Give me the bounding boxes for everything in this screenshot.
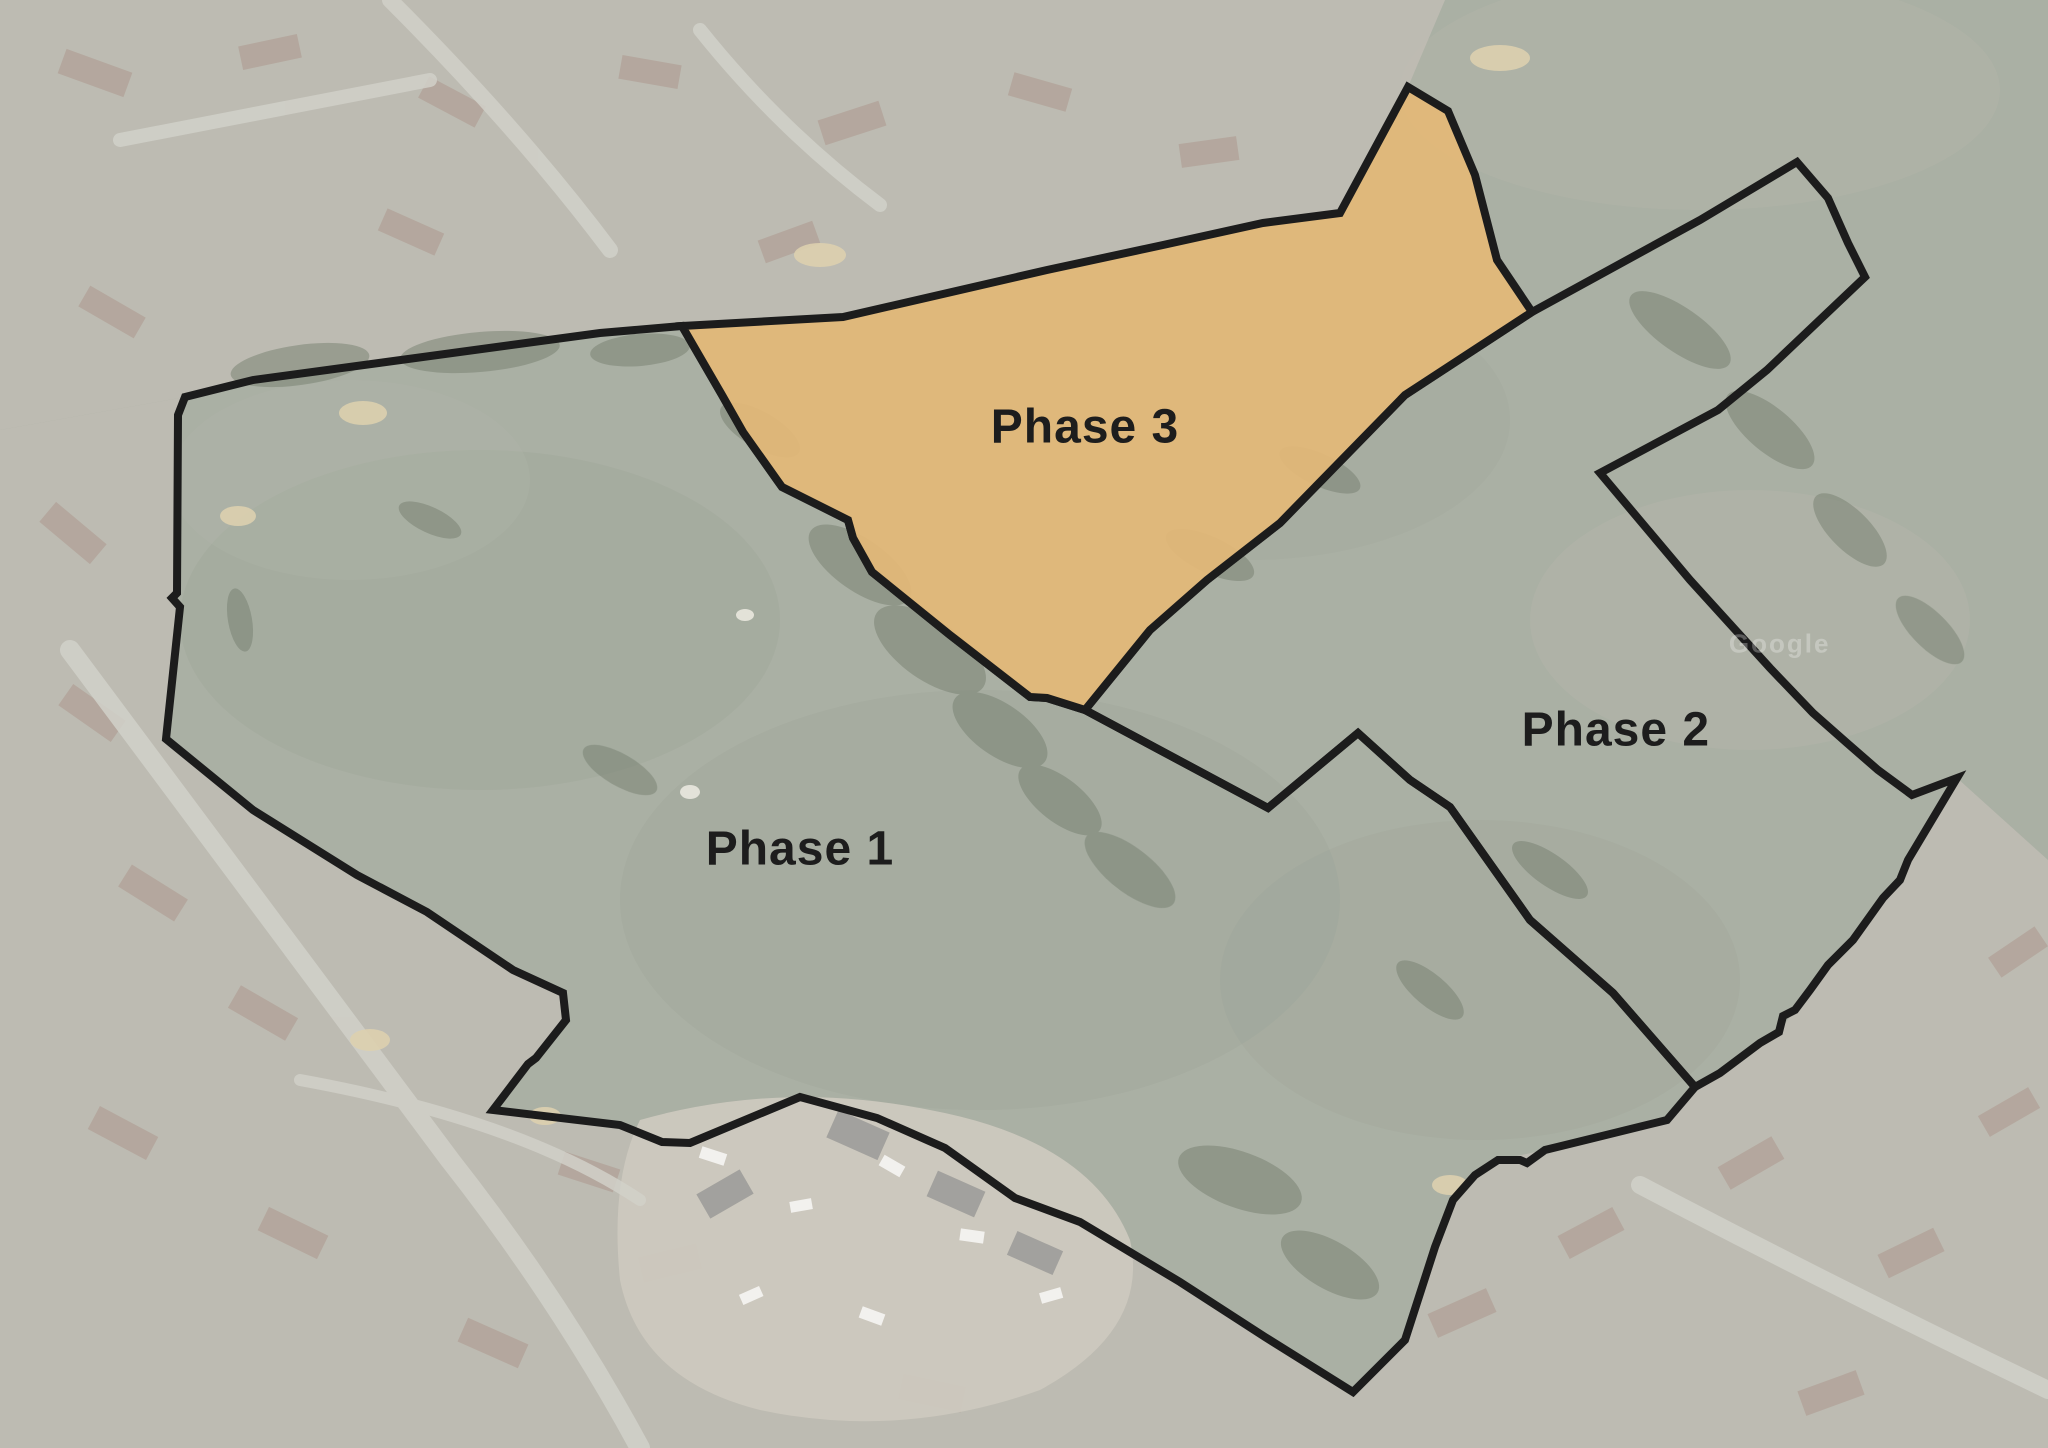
phase2-label: Phase 2 [1522, 702, 1710, 757]
haze-overlay [0, 0, 2048, 1448]
phase1-label: Phase 1 [706, 821, 894, 876]
imagery-watermark: Google [1729, 629, 1831, 660]
aerial-map-canvas [0, 0, 2048, 1448]
site-phasing-map: Google Phase 1 Phase 2 Phase 3 [0, 0, 2048, 1448]
phase3-label: Phase 3 [991, 400, 1179, 455]
